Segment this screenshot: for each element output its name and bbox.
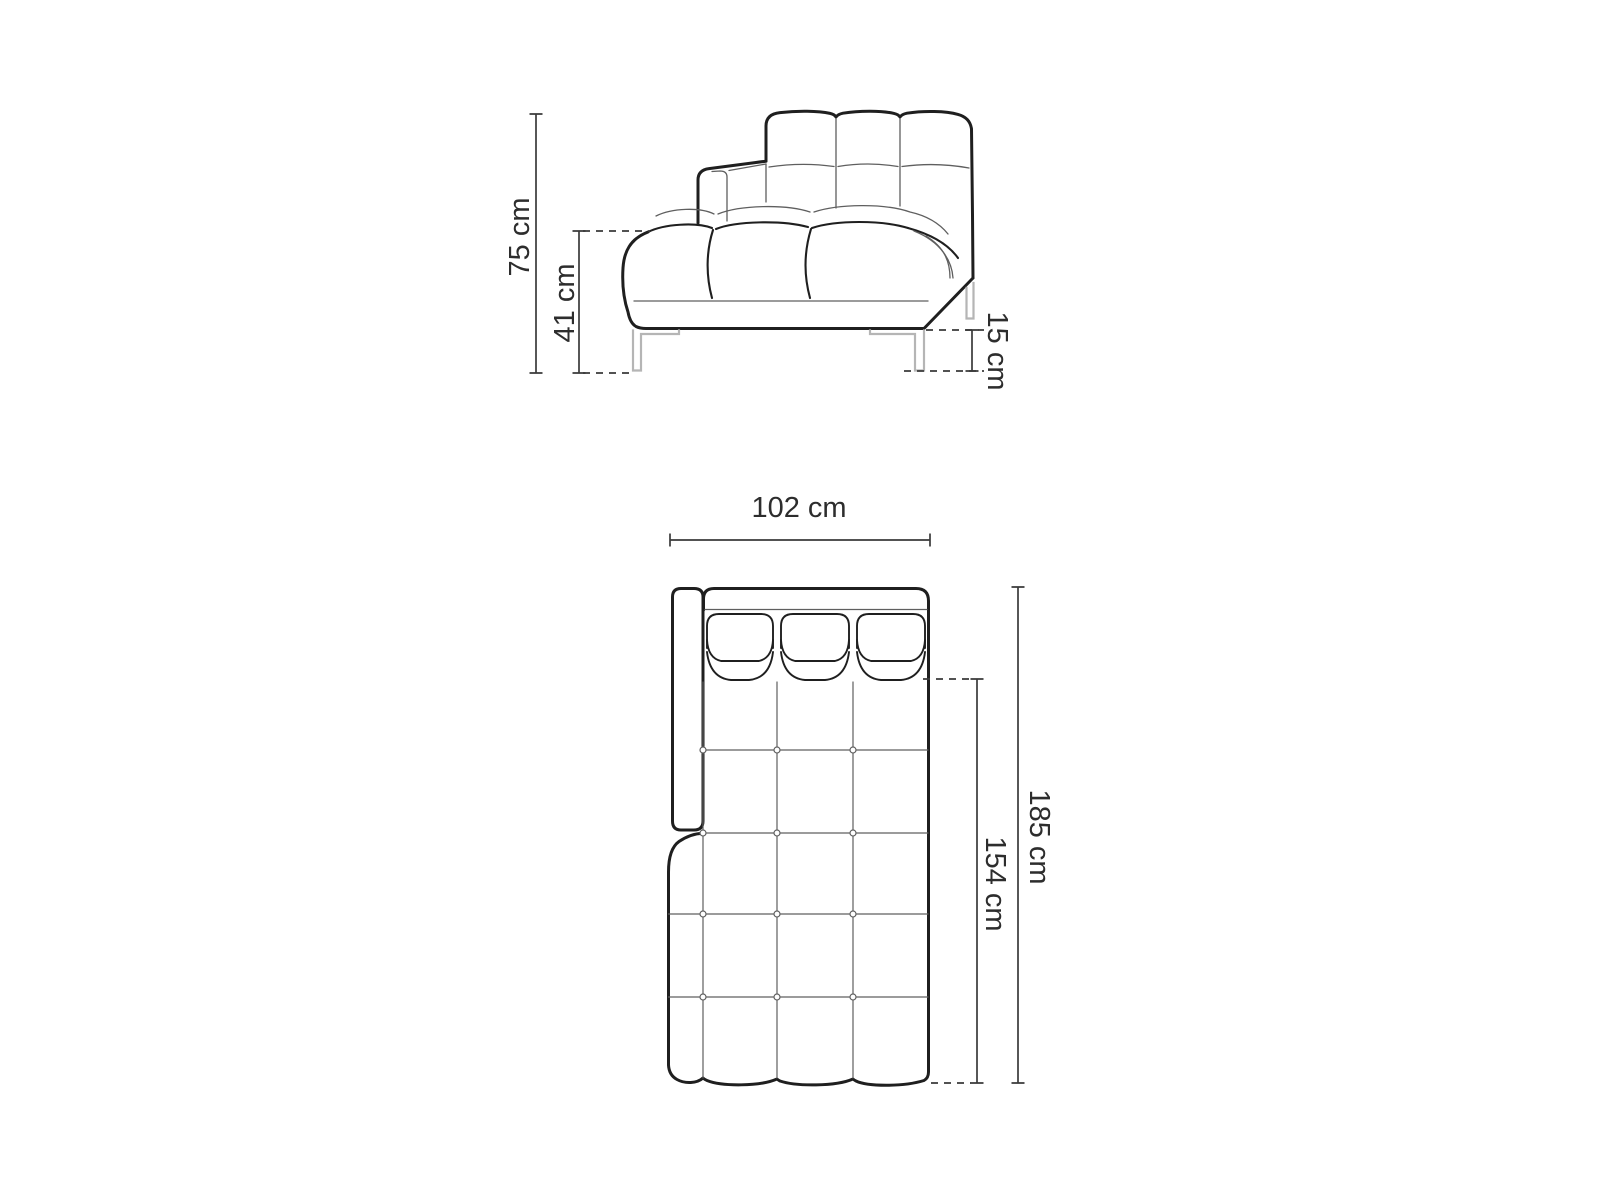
tuft-button (850, 911, 856, 917)
tuft-button (774, 747, 780, 753)
top-seat-length-label: 154 cm (979, 836, 1011, 931)
tuft-button (774, 830, 780, 836)
furniture-dimension-diagram: 75 cm 41 cm 15 cm (0, 0, 1600, 1200)
tuft-button (850, 830, 856, 836)
tuft-button (850, 747, 856, 753)
side-total-height-label: 75 cm (504, 198, 536, 277)
side-leg-height-label: 15 cm (981, 312, 1013, 391)
tuft-button (700, 911, 706, 917)
tuft-button (850, 994, 856, 1000)
tuft-button (700, 747, 706, 753)
tuft-button (774, 911, 780, 917)
tuft-button (700, 830, 706, 836)
tuft-button (774, 994, 780, 1000)
top-total-length-label: 185 cm (1023, 789, 1055, 884)
diagram-background (0, 0, 1600, 1200)
side-seat-height-label: 41 cm (549, 264, 581, 343)
top-width-label: 102 cm (751, 492, 846, 524)
tuft-button (700, 994, 706, 1000)
